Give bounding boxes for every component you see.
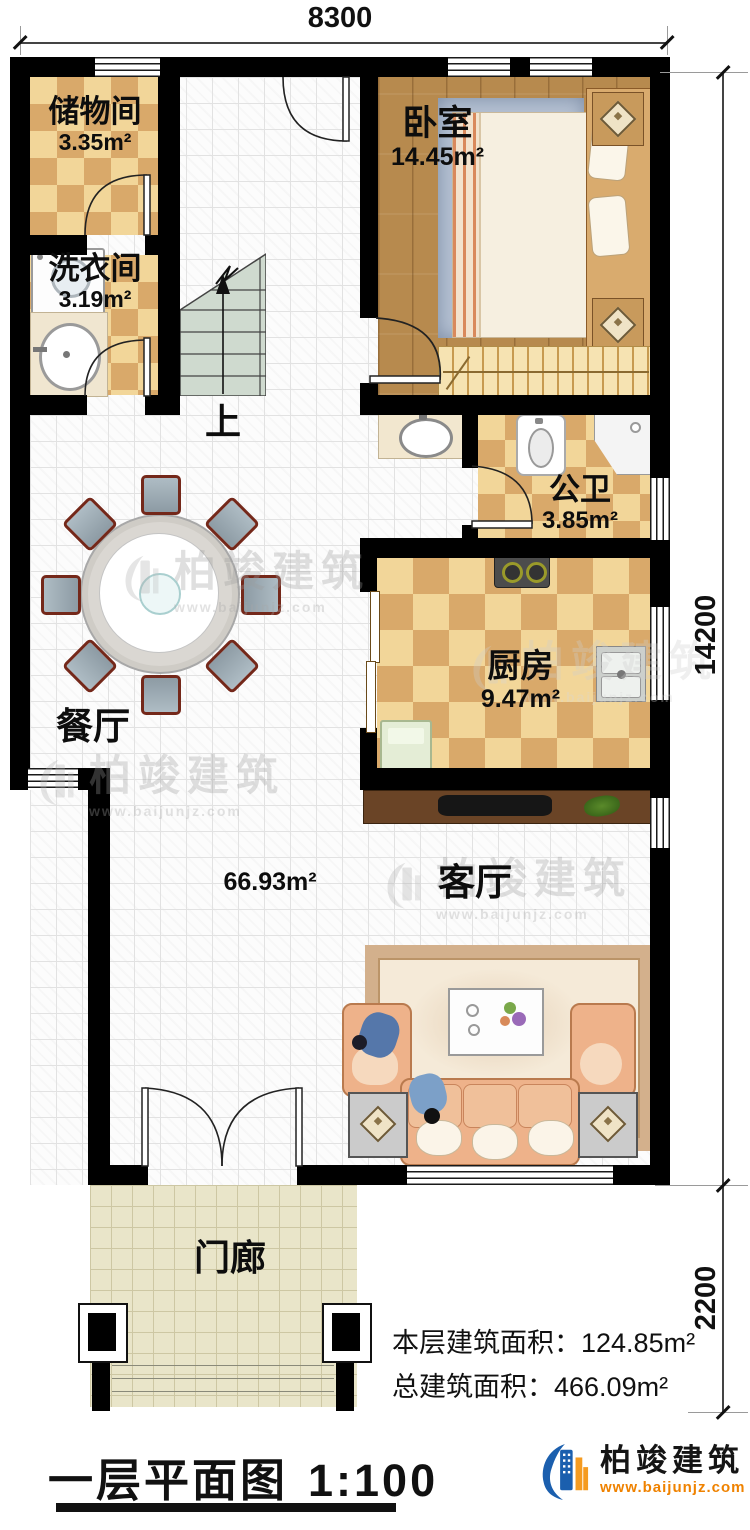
table-lamp-icon — [600, 307, 637, 344]
window-top-storage — [95, 57, 160, 77]
dim-right-main-value: 14200 — [690, 555, 720, 715]
porch-step-line — [112, 1378, 334, 1379]
staircase — [180, 252, 266, 396]
title-text: 一层平面图 — [48, 1444, 288, 1509]
area-value: 66.93m² — [223, 868, 316, 896]
dining-chair — [141, 675, 181, 715]
room-label-dining: 餐厅 — [48, 706, 138, 747]
nightstand — [592, 92, 644, 146]
room-name: 洗衣间 — [32, 252, 158, 287]
stat-label: 本层建筑面积： — [392, 1328, 581, 1358]
refrigerator — [380, 720, 432, 772]
room-label-kitchen: 厨房 9.47m² — [458, 648, 583, 713]
entry-door-left — [140, 1086, 224, 1168]
room-label-bedroom: 卧室 14.45m² — [380, 104, 495, 171]
porch-step-line — [112, 1391, 334, 1392]
stat-value: 124.85m² — [581, 1328, 695, 1358]
wall-laundry-bottom-a — [30, 395, 87, 415]
laundry-door — [83, 338, 153, 400]
wall-bedroom-left-a — [360, 57, 378, 318]
room-name: 厨房 — [458, 648, 583, 685]
room-name: 储物间 — [32, 95, 158, 130]
porch-column — [322, 1303, 372, 1363]
room-name: 门廊 — [194, 1237, 266, 1278]
room-name: 客厅 — [438, 862, 512, 903]
armchair — [570, 1003, 636, 1097]
drawing-title: 一层平面图 1:100 — [48, 1444, 438, 1509]
stat-value: 466.09m² — [554, 1372, 668, 1402]
bedroom-door — [356, 316, 446, 388]
table-lamp-icon — [590, 1106, 627, 1143]
total-area-row: 总建筑面积：466.09m² — [392, 1366, 695, 1410]
dim-top-value: 8300 — [280, 2, 400, 35]
logo-url: www.baijunjz.com — [600, 1479, 745, 1496]
back-door — [281, 75, 351, 145]
porch-column-shaft — [336, 1359, 354, 1411]
room-name: 公卫 — [525, 473, 635, 508]
pillow — [587, 194, 630, 257]
room-label-porch: 门廊 — [170, 1238, 290, 1278]
sofa-pillow — [472, 1124, 518, 1160]
table-lamp-icon — [360, 1106, 397, 1143]
coffee-table — [448, 988, 544, 1056]
window-left-dining — [28, 768, 78, 790]
wall-storage-right — [158, 57, 180, 415]
tv-cabinet — [363, 790, 655, 824]
dim-ext — [688, 1412, 748, 1413]
wall-kitchen-left-a — [360, 558, 377, 592]
floor-area-row: 本层建筑面积：124.85m² — [392, 1322, 695, 1366]
stove — [494, 554, 550, 588]
kitchen-sliding-door-panel — [366, 661, 376, 733]
sofa-pillow — [416, 1120, 462, 1156]
title-scale: 1:100 — [308, 1455, 438, 1507]
window-top-bedroom-2 — [530, 57, 592, 77]
sofa — [400, 1078, 580, 1166]
side-table — [348, 1092, 408, 1158]
dining-chair — [41, 575, 81, 615]
dim-ext — [655, 1185, 748, 1186]
stairs-up-label: 上 — [196, 402, 250, 442]
entry-door-right — [220, 1086, 304, 1168]
wall-left-upper — [10, 57, 30, 790]
stairs-direction: 上 — [205, 401, 241, 442]
wall-bedroom-bottom — [360, 395, 650, 415]
side-table — [578, 1092, 638, 1158]
logo-name: 柏竣建筑 — [600, 1444, 745, 1478]
nightstand — [592, 298, 644, 352]
room-area: 3.35m² — [32, 130, 158, 156]
wardrobe — [438, 346, 654, 400]
wall-bathroom-left-a — [462, 413, 478, 468]
kitchen-sink — [596, 646, 646, 702]
hall-area-label: 66.93m² — [205, 868, 335, 896]
wall-kitchen-top — [360, 538, 650, 558]
company-logo: 柏竣建筑 www.baijunjz.com — [536, 1438, 745, 1502]
room-label-laundry: 洗衣间 3.19m² — [32, 252, 158, 312]
sofa-pillow — [528, 1120, 574, 1156]
window-right-living — [650, 798, 670, 848]
area-stats: 本层建筑面积：124.85m² 总建筑面积：466.09m² — [392, 1322, 695, 1409]
title-underline — [56, 1503, 396, 1512]
vanity-counter — [378, 411, 466, 459]
logo-mark-icon — [536, 1438, 590, 1502]
wall-kitchen-left-b — [360, 728, 377, 770]
dining-chair — [241, 575, 281, 615]
wall-left-lower — [88, 768, 110, 1185]
room-label-bathroom: 公卫 3.85m² — [525, 473, 635, 535]
dim-ext — [660, 72, 748, 73]
person-head — [352, 1035, 367, 1050]
wall-bottom-left — [88, 1165, 148, 1185]
dim-line-right — [722, 72, 724, 1412]
porch-step-line — [112, 1365, 334, 1366]
person-head — [424, 1108, 440, 1124]
room-area: 9.47m² — [458, 685, 583, 713]
window-right-bathroom — [650, 478, 670, 540]
porch-column-shaft — [92, 1359, 110, 1411]
dining-chair — [141, 475, 181, 515]
room-label-living: 客厅 — [425, 862, 525, 903]
room-label-storage: 储物间 3.35m² — [32, 95, 158, 155]
kitchen-sliding-door-panel — [370, 591, 380, 663]
room-area: 3.19m² — [32, 287, 158, 313]
window-top-bedroom-1 — [448, 57, 510, 77]
porch-column — [78, 1303, 128, 1363]
room-area: 14.45m² — [380, 143, 495, 171]
porch-floor — [90, 1185, 357, 1407]
floor-plan-canvas: 柏竣建筑 www.baijunjz.com 柏竣建筑 www.baijunjz.… — [0, 0, 750, 1530]
plant-icon — [583, 793, 622, 819]
wall-bottom-mid — [297, 1165, 407, 1185]
dim-line-top — [20, 42, 667, 44]
wall-kitchen-bottom — [360, 768, 650, 790]
room-name: 餐厅 — [56, 706, 130, 747]
window-bottom-living — [407, 1165, 613, 1185]
room-name: 卧室 — [380, 104, 495, 143]
window-right-kitchen — [650, 607, 670, 700]
storage-door — [83, 173, 153, 239]
stat-label: 总建筑面积： — [392, 1372, 554, 1402]
wall-bottom-right — [613, 1165, 670, 1185]
tv-icon — [438, 795, 552, 816]
room-area: 3.85m² — [525, 508, 635, 535]
table-lamp-icon — [600, 101, 637, 138]
